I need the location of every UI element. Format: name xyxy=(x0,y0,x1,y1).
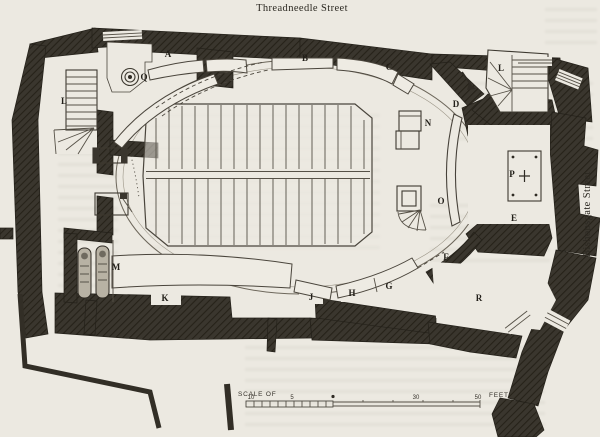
plan-letter-C: C xyxy=(386,62,393,72)
scale-tick-50: 50 xyxy=(475,395,482,401)
scale-tick-30: 30 xyxy=(413,395,420,401)
plan-letter-H: H xyxy=(348,288,355,298)
pulpit-and-desk xyxy=(396,111,421,149)
plan-letter-E: E xyxy=(511,213,517,223)
scale-tick-labels: 1053050 xyxy=(248,395,482,401)
scale-bar-lines xyxy=(246,400,480,408)
plan-letter-J: J xyxy=(309,292,314,302)
scale-unit: FEET xyxy=(489,392,509,399)
monument-effigies xyxy=(78,240,113,302)
communion-rail xyxy=(446,114,462,226)
pulpit-spiral-stair xyxy=(397,186,426,231)
plan-letter-P: P xyxy=(509,169,515,179)
scale-prefix: SCALE OF xyxy=(238,391,277,398)
plan-letter-B: B xyxy=(302,53,308,63)
street-label-bishopsgate: Bishopsgate Street xyxy=(582,171,593,257)
north-west-staircase xyxy=(50,70,97,154)
plan-letter-L: L xyxy=(498,63,504,73)
scale-zero-dot xyxy=(331,395,334,398)
central-pew-block xyxy=(143,104,372,246)
plan-letter-G: G xyxy=(385,281,392,291)
scale-tick-10: 10 xyxy=(248,395,255,401)
plan-letter-Q: Q xyxy=(140,72,147,82)
floor-plan-svg: Threadneedle Street Bishopsgate Street A… xyxy=(0,0,600,437)
north-west-vestibule xyxy=(107,42,152,92)
plan-letter-F: F xyxy=(443,252,449,262)
north-east-window xyxy=(518,57,552,66)
plan-letter-N: N xyxy=(425,118,432,128)
plan-letter-R: R xyxy=(476,293,483,303)
plan-letter-O: O xyxy=(437,196,444,206)
plan-letter-M: M xyxy=(112,262,121,272)
plan-page: Threadneedle Street Bishopsgate Street A… xyxy=(0,0,600,437)
plan-letter-D: D xyxy=(453,99,460,109)
plan-letter-K: K xyxy=(161,293,168,303)
vestry-room xyxy=(432,262,556,330)
plan-letter-A: A xyxy=(165,49,172,59)
street-label-threadneedle: Threadneedle Street xyxy=(256,3,348,14)
plan-letter-L: L xyxy=(61,96,67,106)
scale-tick-5: 5 xyxy=(290,395,294,401)
scale-bar: SCALE OF 1053050 FEET xyxy=(238,391,509,408)
